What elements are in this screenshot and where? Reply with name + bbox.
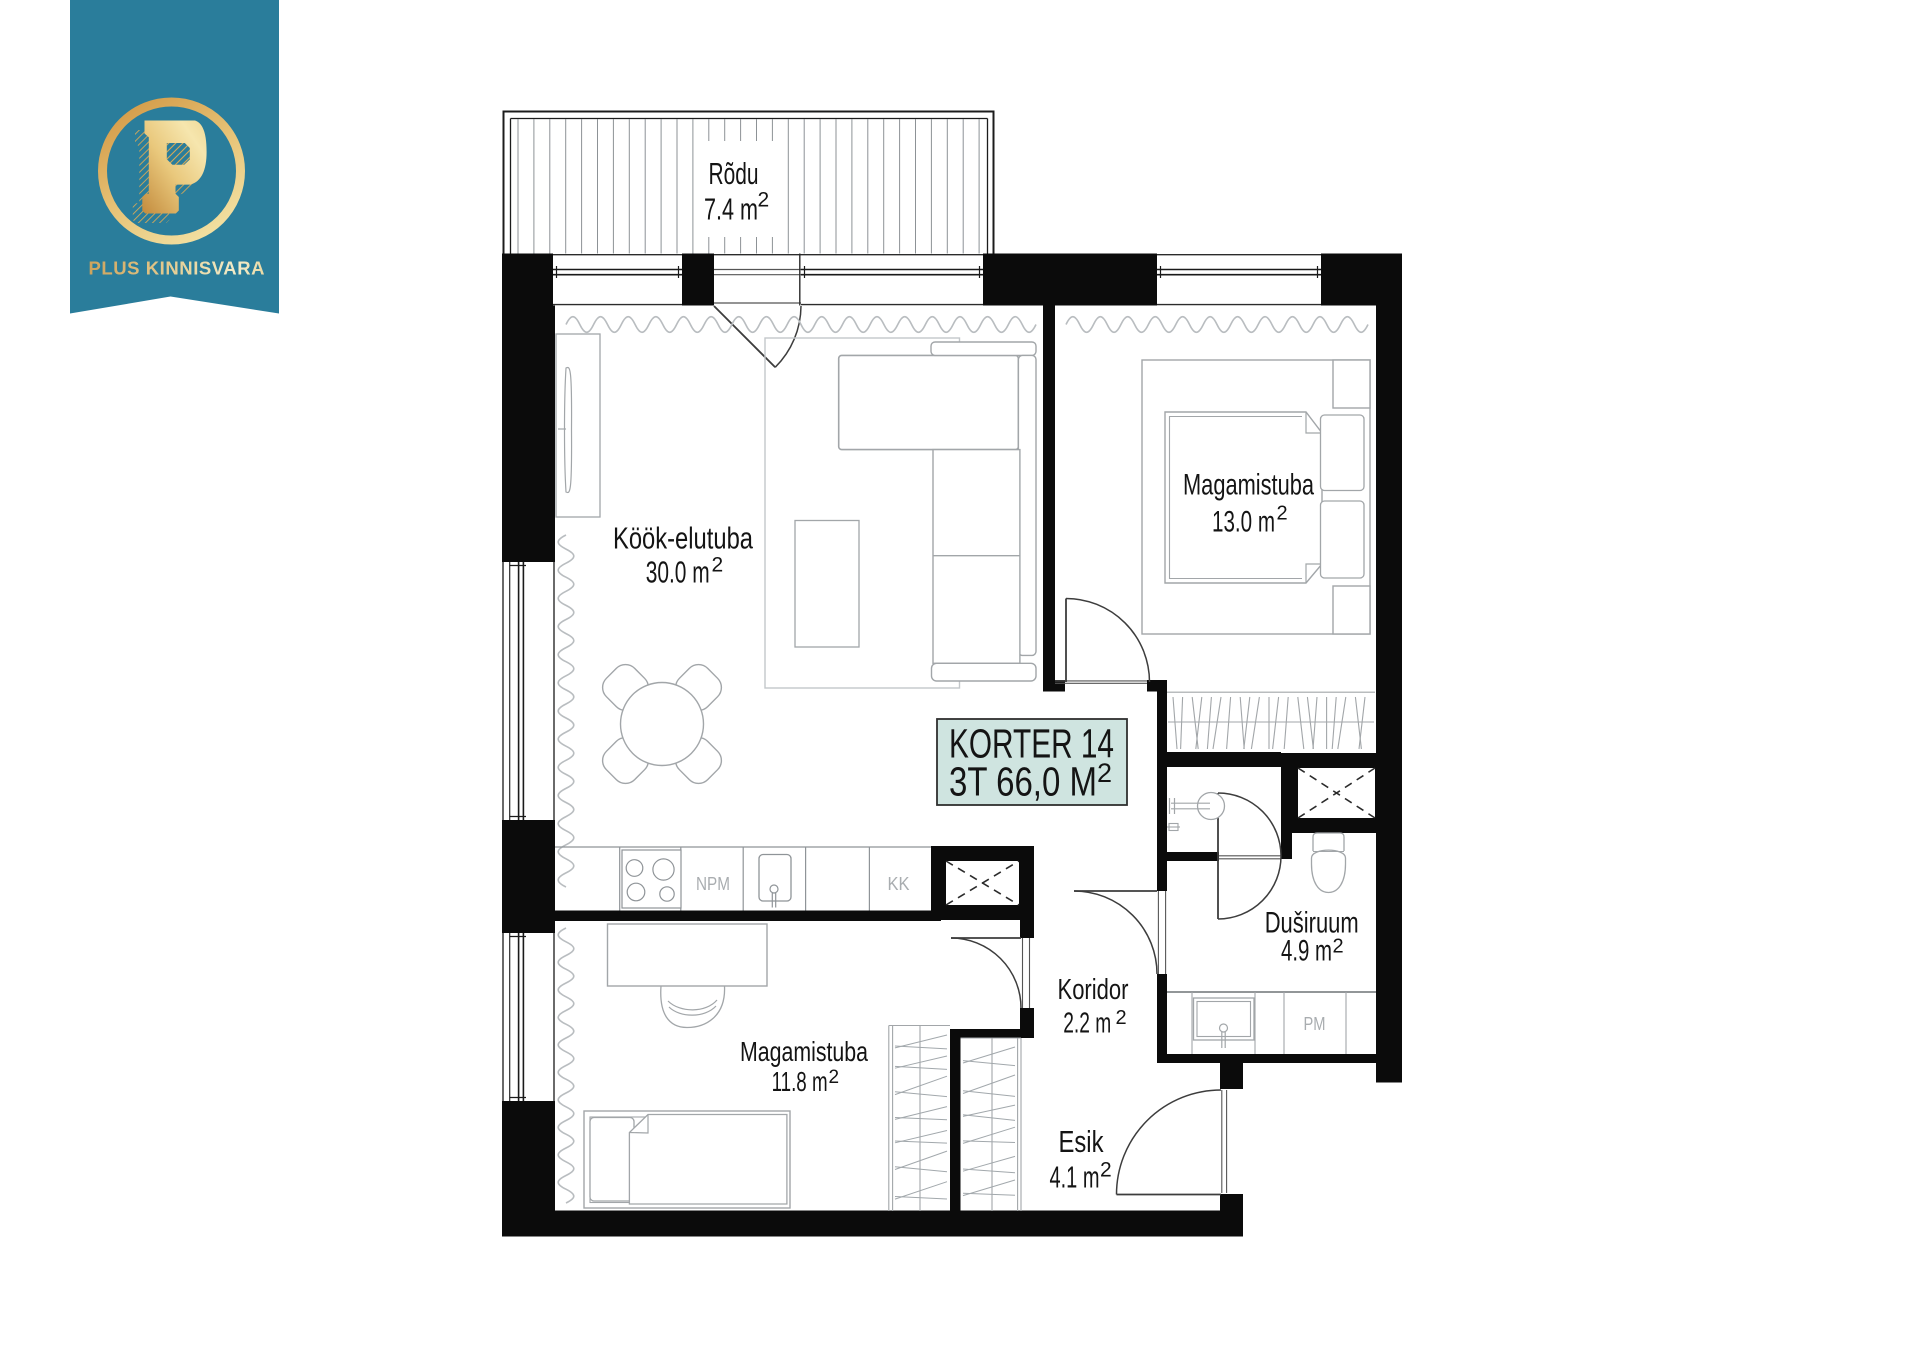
svg-text:PM: PM <box>1304 1014 1326 1034</box>
svg-text:Rõdu: Rõdu <box>709 156 759 191</box>
svg-text:PLUS KINNISVARA: PLUS KINNISVARA <box>89 258 265 279</box>
svg-text:2: 2 <box>1333 936 1344 958</box>
svg-text:4.9 m: 4.9 m <box>1281 935 1332 968</box>
svg-text:Köök-elutuba: Köök-elutuba <box>613 521 754 556</box>
svg-text:2: 2 <box>1097 758 1112 788</box>
svg-text:2: 2 <box>712 554 724 577</box>
svg-text:3T 66,0 M: 3T 66,0 M <box>949 759 1097 805</box>
svg-text:2.2 m: 2.2 m <box>1063 1008 1111 1040</box>
svg-text:13.0 m: 13.0 m <box>1212 506 1275 539</box>
svg-text:4.1 m: 4.1 m <box>1050 1160 1100 1195</box>
svg-text:Esik: Esik <box>1059 1124 1104 1159</box>
svg-text:Koridor: Koridor <box>1058 974 1129 1006</box>
svg-text:2: 2 <box>1116 1007 1127 1029</box>
svg-text:2: 2 <box>1277 503 1288 525</box>
svg-text:NPM: NPM <box>696 874 730 894</box>
svg-text:2: 2 <box>829 1067 840 1088</box>
svg-text:2: 2 <box>1100 1159 1112 1182</box>
svg-text:2: 2 <box>758 189 770 212</box>
svg-text:KK: KK <box>888 874 910 894</box>
svg-text:Magamistuba: Magamistuba <box>1183 469 1314 502</box>
svg-text:30.0 m: 30.0 m <box>646 555 710 590</box>
svg-text:7.4 m: 7.4 m <box>704 192 758 227</box>
svg-text:Magamistuba: Magamistuba <box>740 1036 868 1067</box>
svg-text:11.8 m: 11.8 m <box>772 1066 828 1097</box>
